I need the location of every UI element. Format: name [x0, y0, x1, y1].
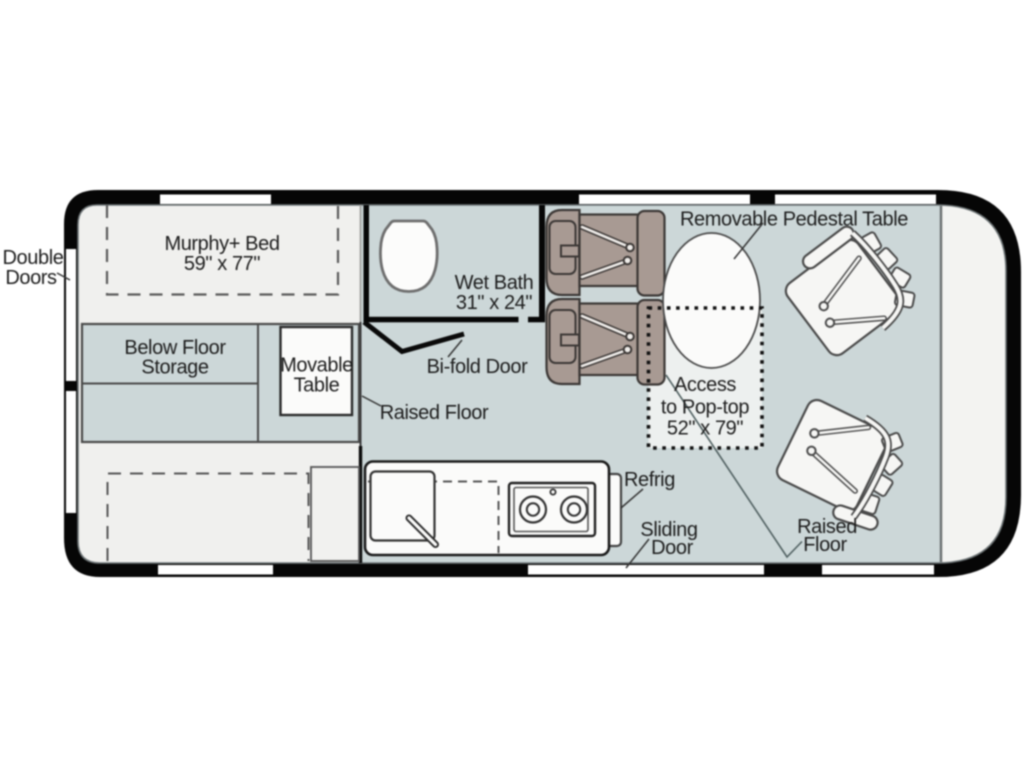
svg-text:Door: Door: [651, 537, 693, 559]
svg-text:Wet Bath: Wet Bath: [455, 272, 534, 294]
svg-text:Table: Table: [294, 375, 340, 397]
svg-text:Storage: Storage: [141, 357, 209, 379]
svg-text:Access: Access: [674, 374, 736, 396]
svg-text:31" x 24": 31" x 24": [456, 292, 533, 314]
svg-text:Murphy+ Bed: Murphy+ Bed: [164, 233, 279, 255]
svg-text:52" x 79": 52" x 79": [667, 418, 744, 440]
svg-text:Double: Double: [3, 247, 64, 269]
svg-text:Removable Pedestal Table: Removable Pedestal Table: [680, 209, 908, 231]
svg-text:to Pop-top: to Pop-top: [661, 397, 750, 419]
svg-text:Refrig: Refrig: [624, 469, 675, 491]
svg-text:Raised Floor: Raised Floor: [380, 402, 489, 424]
svg-text:Movable: Movable: [280, 355, 353, 377]
svg-text:59" x 77": 59" x 77": [184, 253, 261, 275]
svg-text:Doors: Doors: [5, 267, 57, 289]
svg-text:Bi-fold Door: Bi-fold Door: [427, 356, 529, 378]
svg-text:Floor: Floor: [803, 534, 847, 556]
